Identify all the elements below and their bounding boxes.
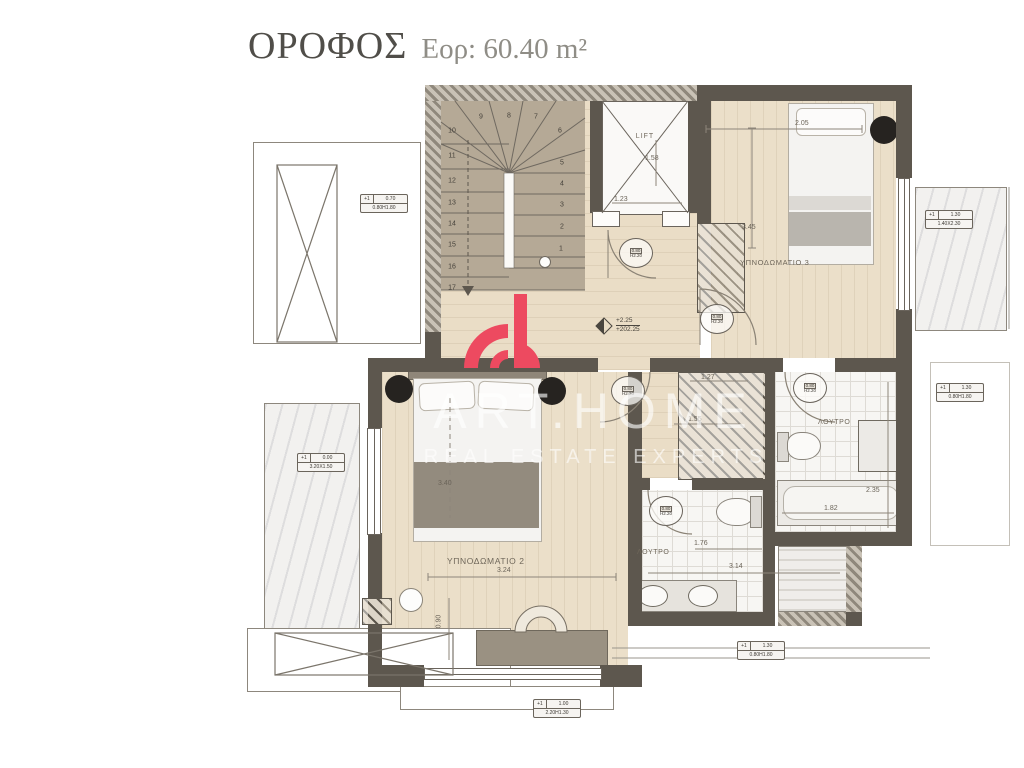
watermark-brand: ART.HOME <box>392 382 796 440</box>
tag-size: 0.80Η1.80 <box>937 393 983 401</box>
balcony-top-right <box>915 187 1007 331</box>
dim-bedroom2-width: 3.24 <box>497 567 511 574</box>
tag-cell: 0.70 <box>374 195 407 203</box>
dim-bath-upper-width: 1.82 <box>824 505 838 512</box>
bedroom2-label: ΥΠΝΟΔΩΜΑΤΙΟ 2 <box>447 556 525 566</box>
door-tag: 0.80 Η2.20 <box>649 496 683 526</box>
stair-number: 12 <box>448 178 456 185</box>
dim-bath-upper-depth: 2.35 <box>866 487 880 494</box>
wall-segment <box>425 332 441 358</box>
blanket <box>789 212 871 246</box>
toilet-lower <box>716 498 754 526</box>
tag-size: 0.80Η1.80 <box>738 651 784 659</box>
opening-tag: +10.00 3.20Χ1.50 <box>297 453 345 472</box>
stair-number: 2 <box>560 224 564 231</box>
dim-bath-lower-width: 1.76 <box>694 540 708 547</box>
opening-tag: +11.30 0.80Η1.80 <box>936 383 984 402</box>
tag-cell: 1.00 <box>547 700 580 708</box>
lift-door-sill <box>662 211 690 227</box>
stair-number: 14 <box>448 221 456 228</box>
wall-segment <box>642 478 650 490</box>
stair-number: 11 <box>448 153 455 160</box>
floor-title: ΟΡΟΦΟΣ <box>248 24 407 68</box>
stair-number: 5 <box>560 160 564 167</box>
watermark-tagline: REAL ESTATE EXPERTS <box>396 446 796 469</box>
level-absolute: +202.25 <box>616 326 640 334</box>
dim-bedroom2-depth: 3.40 <box>438 480 452 487</box>
stair-number: 4 <box>560 181 564 188</box>
stair-number: 10 <box>448 128 456 135</box>
tag-cell: 0.00 <box>311 454 344 462</box>
door-tag: 0.80 Η2.20 <box>619 238 653 268</box>
side-table-bedroom3 <box>870 116 898 144</box>
lift-label: LIFT <box>602 133 688 140</box>
window-bottom-bedroom2 <box>424 668 602 680</box>
shower-upper <box>858 420 900 472</box>
dim-lift-width: 1.23 <box>614 196 628 203</box>
wall-segment <box>368 372 382 428</box>
level-relative: +2.25 <box>616 317 640 326</box>
window-left-bedroom2 <box>367 428 381 535</box>
dim-bedroom3-depth: 3.45 <box>742 224 756 231</box>
lift-door-sill <box>592 211 620 227</box>
wall-segment <box>846 612 862 626</box>
pillar-block <box>362 598 392 625</box>
wall-segment <box>688 101 700 213</box>
balcony-upper-left <box>253 142 421 344</box>
blanket-fold <box>789 196 871 210</box>
tag-cell: +1 <box>738 642 751 650</box>
bath-upper-label: ΛΟΥΤΡΟ <box>818 419 850 426</box>
dim-closet-a: 1.27 <box>701 374 715 381</box>
door-tag: 0.80 Η2.20 <box>793 373 827 403</box>
arthome-logo-icon <box>458 288 550 370</box>
stair-number: 7 <box>534 114 538 121</box>
dim-lift-depth: 1.58 <box>645 155 659 162</box>
wall-segment <box>425 85 697 101</box>
window-right-bedroom3 <box>898 178 910 311</box>
stair-number: 13 <box>448 200 456 207</box>
stair-number: 8 <box>507 113 511 120</box>
desk-bedroom2 <box>476 630 608 666</box>
door-tag-line2: Η2.20 <box>804 389 816 394</box>
stair-number: 1 <box>559 246 563 253</box>
tag-size: 3.20Χ1.50 <box>298 463 344 471</box>
tag-cell: 1.30 <box>950 384 983 392</box>
wall-segment <box>368 665 424 687</box>
page-title: ΟΡΟΦΟΣ Εορ: 60.40 m² <box>248 24 587 68</box>
floor-plan-page: ΟΡΟΦΟΣ Εορ: 60.40 m² LIFT <box>0 0 1024 768</box>
opening-tag: +11.30 1.40Χ2.30 <box>925 210 973 229</box>
dim-bedroom3-bed: 2.05 <box>795 120 809 127</box>
terrace-deck <box>778 546 847 612</box>
tag-cell: 1.30 <box>939 211 972 219</box>
stair-number: 15 <box>448 242 456 249</box>
dim-terrace-width: 3.14 <box>729 563 743 570</box>
level-marker: +2.25 +202.25 <box>616 317 640 334</box>
stair-number: 17 <box>448 285 456 292</box>
wall-segment <box>628 612 775 626</box>
wardrobe-bedroom3 <box>697 223 745 313</box>
staircase-floor <box>441 101 585 290</box>
wall-segment <box>650 358 783 372</box>
wall-segment <box>590 101 602 213</box>
toilet-tank-lower <box>750 496 762 528</box>
wall-segment <box>425 101 441 332</box>
stair-number: 6 <box>558 128 562 135</box>
sink-basin <box>638 585 668 607</box>
balcony-bottom-center <box>400 686 614 710</box>
floor-lamp <box>399 588 423 612</box>
wall-segment <box>763 532 912 546</box>
wall-segment <box>697 85 912 101</box>
tag-size: 2.20Η1.30 <box>534 709 580 717</box>
bathtub-inner <box>783 486 899 520</box>
tag-cell: 1.30 <box>751 642 784 650</box>
tag-cell: +1 <box>926 211 939 219</box>
wall-segment <box>600 665 642 687</box>
stair-number: 16 <box>448 264 456 271</box>
dim-bedroom2-desk: 0.90 <box>435 615 442 629</box>
stair-number: 9 <box>479 114 483 121</box>
tag-size: 0.80Η1.80 <box>361 204 407 212</box>
opening-tag: +11.30 0.80Η1.80 <box>737 641 785 660</box>
floor-area: Εορ: 60.40 m² <box>421 33 587 66</box>
wall-segment <box>896 101 912 178</box>
tag-cell: +1 <box>361 195 374 203</box>
door-tag-line2: Η2.20 <box>660 512 672 517</box>
tag-size: 1.40Χ2.30 <box>926 220 972 228</box>
wall-segment <box>896 372 912 546</box>
wall-segment <box>692 478 763 490</box>
wall-segment <box>835 358 912 372</box>
opening-tag: +11.00 2.20Η1.30 <box>533 699 581 718</box>
stair-number: 3 <box>560 202 564 209</box>
tag-cell: +1 <box>298 454 311 462</box>
door-tag-line2: Η2.20 <box>711 320 723 325</box>
opening-tag: +10.70 0.80Η1.80 <box>360 194 408 213</box>
balcony-lower-left <box>264 403 360 662</box>
bedroom3-label: ΥΠΝΟΔΩΜΑΤΙΟ 3 <box>740 258 809 267</box>
door-tag-line2: Η2.20 <box>630 254 642 259</box>
tag-cell: +1 <box>534 700 547 708</box>
door-tag: 0.80 Η2.20 <box>700 304 734 334</box>
tag-cell: +1 <box>937 384 950 392</box>
sink-basin <box>688 585 718 607</box>
duvet-bedroom2 <box>414 462 539 528</box>
bath-lower-label: ΛΟΥΤΡΟ <box>637 549 669 556</box>
